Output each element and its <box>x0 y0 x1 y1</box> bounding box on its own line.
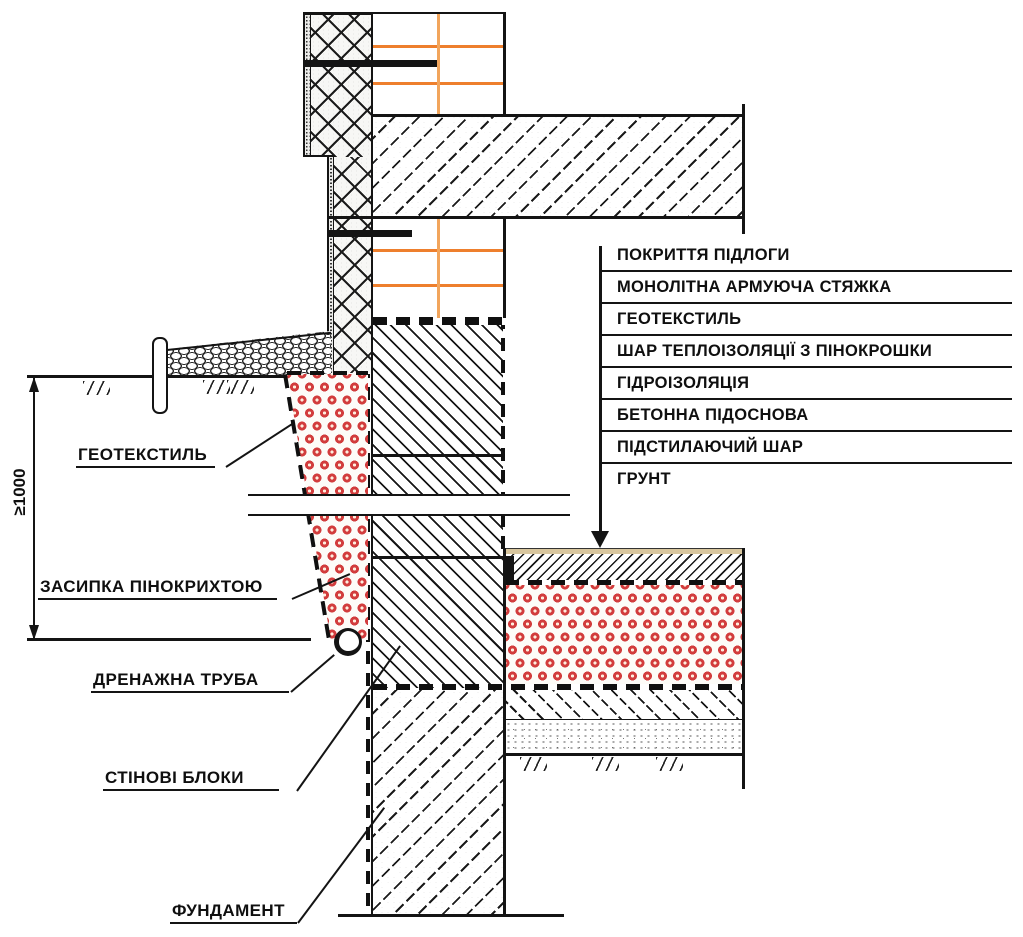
legend-row: ШАР ТЕПЛОІЗОЛЯЦІЇ З ПІНОКРОШКИ <box>600 336 1012 368</box>
legend-row: ГЕОТЕКСТИЛЬ <box>600 304 1012 336</box>
brick-joint-vertical <box>437 14 440 115</box>
drainage-pipe <box>334 628 362 656</box>
soil-hatch-marks <box>520 757 547 771</box>
legend-row: ГРУНТ <box>600 464 1012 494</box>
floor-cut-edge <box>742 548 745 789</box>
soil-hatch-marks <box>203 380 230 394</box>
anchor-tie-upper <box>303 60 437 67</box>
foundation <box>373 690 503 916</box>
pit-bottom-line <box>27 638 311 641</box>
plaster-strip-upper <box>303 12 311 157</box>
ground-level-line <box>27 375 153 378</box>
wall-floor-junction <box>503 548 506 916</box>
anchor-tie-lower <box>327 230 412 237</box>
facade-insulation-upper <box>311 12 373 157</box>
section-break-band <box>248 494 570 516</box>
facade-step-edge <box>303 155 335 157</box>
callout-drain-pipe: ДРЕНАЖНА ТРУБА <box>91 670 289 693</box>
wall-inner-face-lower <box>503 218 506 318</box>
soil-hatch-marks <box>83 381 110 395</box>
waterproofing-top-band <box>373 317 503 325</box>
legend-row: БЕТОННА ПІДОСНОВА <box>600 400 1012 432</box>
callout-foam-backfill: ЗАСИПКА ПІНОКРИХТОЮ <box>38 577 277 600</box>
callout-geotextile-leader <box>225 423 292 468</box>
wall-inner-face-upper <box>503 12 506 115</box>
concrete-subbase-layer <box>505 690 743 720</box>
legend-row: ПІДСТИЛАЮЧИЙ ШАР <box>600 432 1012 464</box>
dimension-line <box>33 378 35 640</box>
callout-foundation: ФУНДАМЕНТ <box>170 901 297 924</box>
reinforced-screed-layer <box>505 554 743 580</box>
dimension-arrow-bottom <box>29 625 39 640</box>
soil-hatch-marks <box>592 757 619 771</box>
wall-outer-face <box>371 12 373 916</box>
legend-arrow <box>591 531 609 548</box>
soil-hatch-marks <box>656 757 683 771</box>
callout-drain-pipe-leader <box>290 654 335 693</box>
dimension-arrow-top <box>29 377 39 392</box>
legend-row: МОНОЛІТНА АРМУЮЧА СТЯЖКА <box>600 272 1012 304</box>
legend-row: ГІДРОІЗОЛЯЦІЯ <box>600 368 1012 400</box>
screed-edge-block <box>505 556 514 580</box>
construction-detail-drawing: ≥1000 ПОКРИТТЯ ПІДЛОГИ МОНОЛІТНА АРМУЮЧА… <box>0 0 1023 937</box>
interior-ground-line <box>505 753 743 756</box>
block-joint <box>373 454 503 457</box>
facade-insulation-lower <box>334 157 373 373</box>
slab-top-edge <box>373 114 742 117</box>
callout-geotextile: ГЕОТЕКСТИЛЬ <box>76 445 215 468</box>
legend-row: ПОКРИТТЯ ПІДЛОГИ <box>600 240 1012 272</box>
floor-slab <box>373 115 742 218</box>
foundation-bottom-edge <box>338 914 564 917</box>
block-joint <box>373 556 503 559</box>
dimension-label: ≥1000 <box>10 437 30 547</box>
brick-joint-vertical <box>437 218 440 318</box>
legend-leader-line <box>599 246 602 533</box>
slab-cut-edge <box>742 104 745 234</box>
bedding-layer <box>505 721 743 754</box>
slab-bottom-edge <box>327 216 743 219</box>
geotextile-top-edge <box>287 371 368 375</box>
foam-insulation-layer <box>505 585 743 684</box>
curb-block <box>152 337 168 414</box>
callout-wall-blocks: СТІНОВІ БЛОКИ <box>103 768 279 791</box>
soil-hatch-marks <box>227 380 254 394</box>
floor-layers-legend: ПОКРИТТЯ ПІДЛОГИ МОНОЛІТНА АРМУЮЧА СТЯЖК… <box>600 240 1012 494</box>
